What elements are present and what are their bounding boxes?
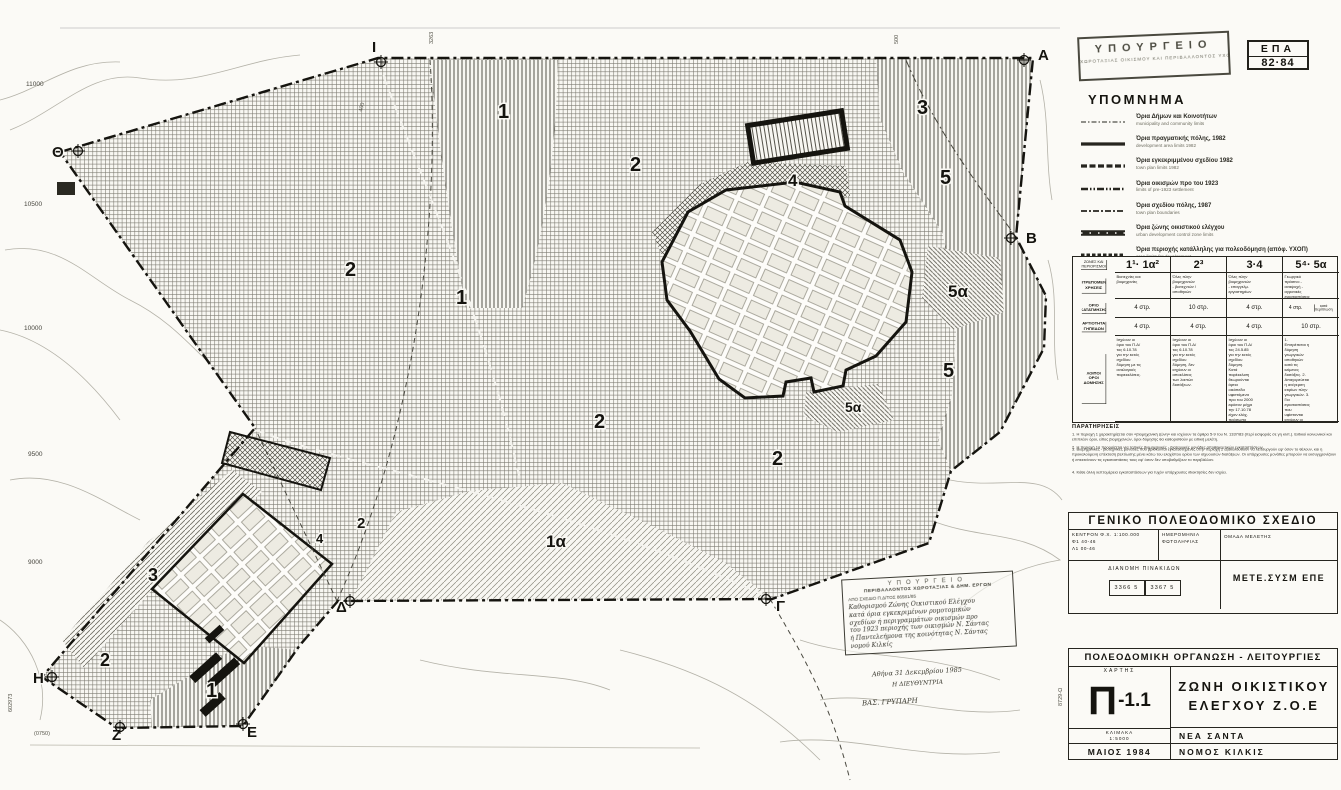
legend-item: Όρια πραγματικής πόλης, 1982 development… — [1080, 136, 1336, 155]
legend-symbol-dashdot_med — [1080, 204, 1128, 222]
legend-label-en: limits of pre-1923 settlement — [1136, 187, 1218, 192]
prefecture-name: ΝΟΜΟΣ ΚΙΛΚΙΣ — [1171, 743, 1337, 759]
gps-block: ΓΕΝΙΚΟ ΠΟΛΕΟΔΟΜΙΚΟ ΣΧΕΔΙΟ ΚΕΝΤΡΟΝ Φ.Χ. 1… — [1068, 512, 1338, 614]
note-item: 4. Κάθε άλλη λεπτομέρεια εγκαταστάσεων γ… — [1072, 470, 1338, 475]
place-name: ΝΕΑ ΣΑΝΤΑ — [1171, 727, 1337, 743]
table-cell: Ισχύουν οι όροι του Π.Δ/τος 6.10.78 για … — [1115, 336, 1171, 422]
legend-title: ΥΠΟΜΝΗΜΑ — [1088, 92, 1186, 107]
decree-handwritten-text: Καθορισμού Ζώνης Οικιστικού Ελέγχουκατά … — [848, 596, 1010, 651]
zone-title-line1: ΖΩΝΗ ΟΙΚΙΣΤΙΚΟΥ — [1178, 678, 1330, 697]
note-item: 1. Η περιοχή 1 χαρακτηρίζεται σαν «βιομη… — [1072, 432, 1338, 442]
grid-coordinate: 11000 — [26, 81, 44, 88]
table-zone-header: 5⁴· 5α — [1283, 257, 1339, 273]
map-annotation: 3263 — [429, 32, 435, 44]
legend-symbol-solid_thick — [1080, 137, 1128, 155]
title-block-bar: ΠΟΛΕΟΔΟΜΙΚΗ ΟΡΓΑΝΩΣΗ - ΛΕΙΤΟΥΡΓΙΕΣ — [1068, 648, 1338, 667]
zone-label-2: 2 — [100, 650, 110, 670]
zone-label-3: 3 — [917, 97, 928, 119]
table-cell: Όλες πλην βιομηχανιών - επαγγελμ. εργαστ… — [1227, 273, 1283, 299]
ministry-stamp: ΥΠΟΥΡΓΕΙΟ ΧΩΡΟΤΑΞΙΑΣ ΟΙΚΙΣΜΟΥ ΚΑΙ ΠΕΡΙΒΑ… — [1077, 31, 1231, 82]
gps-title: ΓΕΝΙΚΟ ΠΟΛΕΟΔΟΜΙΚΟ ΣΧΕΔΙΟ — [1069, 513, 1337, 530]
zone-title: ΖΩΝΗ ΟΙΚΙΣΤΙΚΟΥ ΕΛΕΓΧΟΥ Ζ.Ο.Ε — [1171, 667, 1337, 727]
table-cell: Όλες πλην βιομηχανιών - βιοτεχνιών / απο… — [1171, 273, 1227, 299]
legend-symbol-zoe — [1080, 226, 1128, 244]
zone-label-2: 2 — [357, 515, 365, 532]
table-cell: Βιοτεχνίες και βιομηχανίες — [1115, 273, 1171, 299]
table-cell: Ισχύουν οι όροι του Π.Δ/τος 6.10.78 για … — [1171, 336, 1227, 422]
table-cell: 4 στρ. — [1115, 318, 1171, 336]
scale-cell: ΚΛΙΜΑΚΑ 1:5000 — [1069, 728, 1170, 743]
zones-table: ΖΩΝΕΣ ΚΑΙ ΠΕΡΙΟΡΙΣΜΟΙ1¹· 1α²2³3·45⁴· 5αΕ… — [1072, 256, 1338, 423]
legend-symbol-dash_dotdot — [1080, 182, 1128, 200]
legend-label-en: town plan boundaries — [1136, 210, 1211, 215]
corner-letter-Γ: Γ — [776, 598, 785, 615]
table-zone-header: 3·4 — [1227, 257, 1283, 273]
table-cell: 4 στρ. — [1115, 299, 1171, 318]
table-cell: 4 στρ. — [1171, 318, 1227, 336]
title-block: ΠΟΛΕΟΔΟΜΙΚΗ ΟΡΓΑΝΩΣΗ - ΛΕΙΤΟΥΡΓΙΕΣ ΧΑΡΤΗ… — [1068, 648, 1338, 762]
legend-symbol-dash_thick — [1080, 159, 1128, 177]
grid-coordinate: 9500 — [28, 451, 43, 458]
gps-center-scale: ΚΕΝΤΡΟΝ Φ.Χ. 1:100.000 — [1072, 532, 1140, 537]
gps-center-f: Φ1 40-46 — [1072, 539, 1096, 544]
legend-label-gr: Όρια πραγματικής πόλης, 1982 — [1136, 136, 1226, 143]
legend-item: Όρια Δήμων και Κοινοτήτων municipality a… — [1080, 114, 1336, 133]
epa-label: ΕΠΑ — [1249, 42, 1307, 57]
legend-item: Όρια ζώνης οικιστικού ελέγχου urban deve… — [1080, 225, 1336, 244]
zone-label-4: 4 — [316, 531, 324, 546]
decree-stamp: ΥΠΟΥΡΓΕΙΟ ΠΕΡΙΒΑΛΛΟΝΤΟΣ ΧΩΡΟΤΑΞΙΑΣ & ΔΗΜ… — [841, 571, 1017, 655]
gps-sheets-label: ΔΙΑΝΟΜΗ ΠΙΝΑΚΙΔΩΝ — [1069, 566, 1220, 572]
small-settlement-mark — [57, 182, 75, 195]
zone-label-2: 2 — [345, 259, 356, 281]
legend-label-gr: Όρια σχεδίου πόλης, 1987 — [1136, 203, 1211, 210]
zone-label-2: 2 — [630, 154, 641, 176]
grid-coordinate: 10500 — [24, 201, 42, 208]
zone-label-5α: 5α — [948, 282, 968, 301]
notes-section: ΠΑΡΑΤΗΡΗΣΕΙΣ 1. Η περιοχή 1 χαρακτηρίζετ… — [1072, 424, 1338, 473]
grid-coordinate: 9000 — [28, 559, 43, 566]
zone-label-1: 1 — [456, 287, 467, 309]
map-code-number: -1.1 — [1118, 690, 1151, 712]
map-code-letter: Π — [1088, 685, 1117, 717]
gps-team-cell: ΟΜΑΔΑ ΜΕΛΕΤΗΣ — [1221, 530, 1337, 560]
sheet-number-2: 3367 5 — [1145, 580, 1181, 596]
map-annotation: 8729-Ω — [1058, 688, 1064, 706]
table-zone-header: 1¹· 1α² — [1115, 257, 1171, 273]
gps-photo-cell: ΗΜΕΡΟΜΗΝΙΑ ΦΩΤΟΛΗΨΙΑΣ — [1159, 530, 1221, 560]
corner-letter-Θ: Θ — [52, 144, 64, 161]
gps-firm: ΜΕΤΕ.ΣΥΣΜ ΕΠΕ — [1221, 561, 1337, 609]
epa-years: 82·84 — [1249, 57, 1307, 69]
map-label: ΧΑΡΤΗΣ — [1069, 667, 1170, 674]
legend-label-gr: Όρια οικισμών προ του 1923 — [1136, 181, 1218, 188]
table-cell: 10 στρ. — [1283, 318, 1339, 336]
table-cell: 4 στρ. — [1227, 299, 1283, 318]
zone-label-5α: 5α — [845, 399, 862, 415]
zone-label-5: 5 — [943, 360, 954, 382]
note-item: 3. Βιομηχανικές - βιοτεχνικές μονάδες πο… — [1072, 447, 1338, 463]
scale-value: 1:5000 — [1069, 736, 1170, 742]
legend-label-gr: Όρια εγκεκριμμένου σχεδίου 1982 — [1136, 158, 1233, 165]
gps-center-l: Λ1 00-46 — [1072, 546, 1095, 551]
map-annotation: (0750) — [34, 731, 50, 737]
legend-label-en: development area limits 1982 — [1136, 143, 1226, 148]
legend-symbol-dashdot_thin — [1080, 115, 1128, 133]
zone-label-5: 5 — [940, 167, 951, 189]
map-date: ΜΑΙΟΣ 1984 — [1069, 743, 1170, 759]
table-cell: 4 στρ. — [1227, 318, 1283, 336]
zone-label-2: 2 — [772, 448, 783, 470]
gps-center-cell: ΚΕΝΤΡΟΝ Φ.Χ. 1:100.000 Φ1 40-46 Λ1 00-46 — [1069, 530, 1159, 560]
table-cell: 1. Επιτρέπεται η δόμηση γεωργικών αποθηκ… — [1283, 336, 1339, 422]
corner-letter-Ε: Ε — [247, 724, 257, 741]
legend-label-en: urban development control zone limits — [1136, 232, 1224, 237]
legend-label-gr: Όρια Δήμων και Κοινοτήτων — [1136, 114, 1217, 121]
table-cell: Γεωργικό πράσινο - αναψυχή - αγροτικές ε… — [1283, 273, 1339, 299]
map-sheet: 11000105001000095009000 12345215α55α221α… — [0, 0, 1341, 790]
table-cell: 4 στρ.κατά περίπτωση — [1283, 299, 1339, 318]
zone-label-2: 2 — [594, 411, 605, 433]
zone-label-1: 1 — [206, 680, 217, 702]
corner-letter-Α: Α — [1038, 47, 1049, 64]
legend-item: Όρια οικισμών προ του 1923 limits of pre… — [1080, 181, 1336, 200]
gps-sheets-cell: ΔΙΑΝΟΜΗ ΠΙΝΑΚΙΔΩΝ 3366 5 3367 5 — [1069, 561, 1221, 609]
legend-label-gr: Όρια περιοχής κατάλληλης για πολεοδόμηση… — [1136, 247, 1308, 254]
zone-title-line2: ΕΛΕΓΧΟΥ Ζ.Ο.Ε — [1189, 697, 1320, 716]
table-row-label: ΕΠΙΤΡΕΠΟΜΕΝΕΣ ΧΡΗΣΕΙΣ — [1082, 278, 1106, 293]
map-code: Π -1.1 — [1069, 674, 1170, 728]
map-annotation: 602973 — [8, 694, 14, 712]
table-row-label: ΛΟΙΠΟΙ ΟΡΟΙ ΔΟΜΗΣΗΣ — [1082, 354, 1106, 404]
table-cell: 10 στρ. — [1171, 299, 1227, 318]
legend-item: Όρια σχεδίου πόλης, 1987 town plan bound… — [1080, 203, 1336, 222]
table-row-label: ΟΡΙΟ ΚΑΤΑΤΜΗΣΗΣ — [1082, 303, 1106, 314]
table-zone-header: 2³ — [1171, 257, 1227, 273]
corner-letter-Β: Β — [1026, 230, 1037, 247]
corner-letter-Η: Η — [33, 670, 44, 687]
map-annotation: 500 — [894, 35, 900, 44]
table-cell: Ισχύουν οι όροι του Π.Δ/τος 24.5.85 για … — [1227, 336, 1283, 422]
legend-item: Όρια εγκεκριμμένου σχεδίου 1982 town pla… — [1080, 158, 1336, 177]
zone-label-4: 4 — [788, 171, 798, 190]
grid-coordinate: 10000 — [24, 325, 42, 332]
legend-label-en: municipality and community limits — [1136, 121, 1217, 126]
legend-label-en: town plan limits 1982 — [1136, 165, 1233, 170]
sheet-bottom-rule — [30, 745, 700, 748]
sheet-number-1: 3366 5 — [1109, 580, 1145, 596]
epa-box: ΕΠΑ 82·84 — [1247, 40, 1309, 70]
grid-coordinate-labels: 11000105001000095009000 — [24, 81, 44, 566]
legend-label-gr: Όρια ζώνης οικιστικού ελέγχου — [1136, 225, 1224, 232]
zone-label-1: 1 — [498, 101, 509, 123]
zone-label-1α: 1α — [546, 532, 566, 551]
notes-title: ΠΑΡΑΤΗΡΗΣΕΙΣ — [1072, 424, 1338, 430]
corner-letter-Ι: Ι — [372, 39, 376, 56]
table-row-label: ΑΡΤΙΟΤΗΤΑ ΓΗΠΕΔΩΝ — [1082, 322, 1106, 332]
zone-label-3: 3 — [148, 565, 158, 585]
table-corner-header: ΖΩΝΕΣ ΚΑΙ ΠΕΡΙΟΡΙΣΜΟΙ — [1081, 260, 1107, 270]
